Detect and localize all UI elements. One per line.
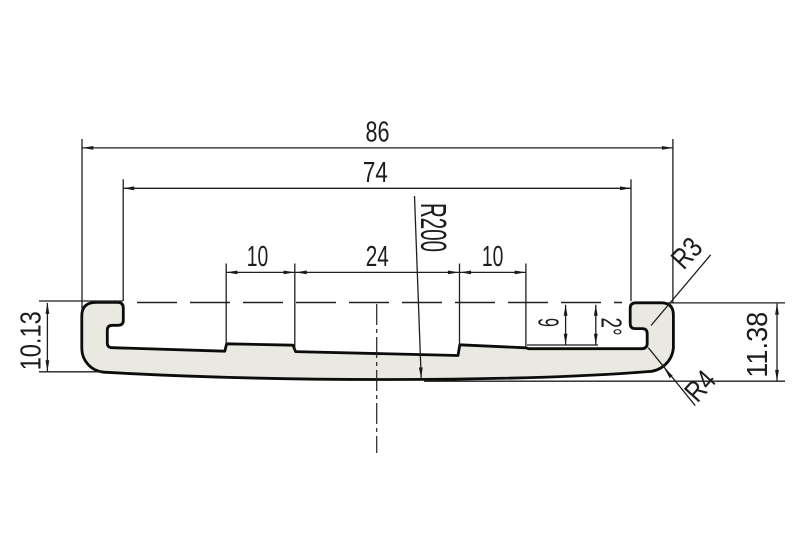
svg-text:11.38: 11.38 [742,312,774,378]
svg-text:R3: R3 [665,232,709,276]
svg-text:86: 86 [366,117,390,149]
svg-text:R200: R200 [413,203,454,252]
svg-text:R4: R4 [679,365,723,409]
svg-text:10: 10 [247,241,269,273]
svg-text:74: 74 [363,157,388,189]
svg-text:24: 24 [366,241,389,273]
svg-text:2°: 2° [595,318,627,336]
svg-text:6: 6 [533,318,565,327]
svg-text:10.13: 10.13 [16,311,48,370]
svg-text:10: 10 [482,241,504,273]
